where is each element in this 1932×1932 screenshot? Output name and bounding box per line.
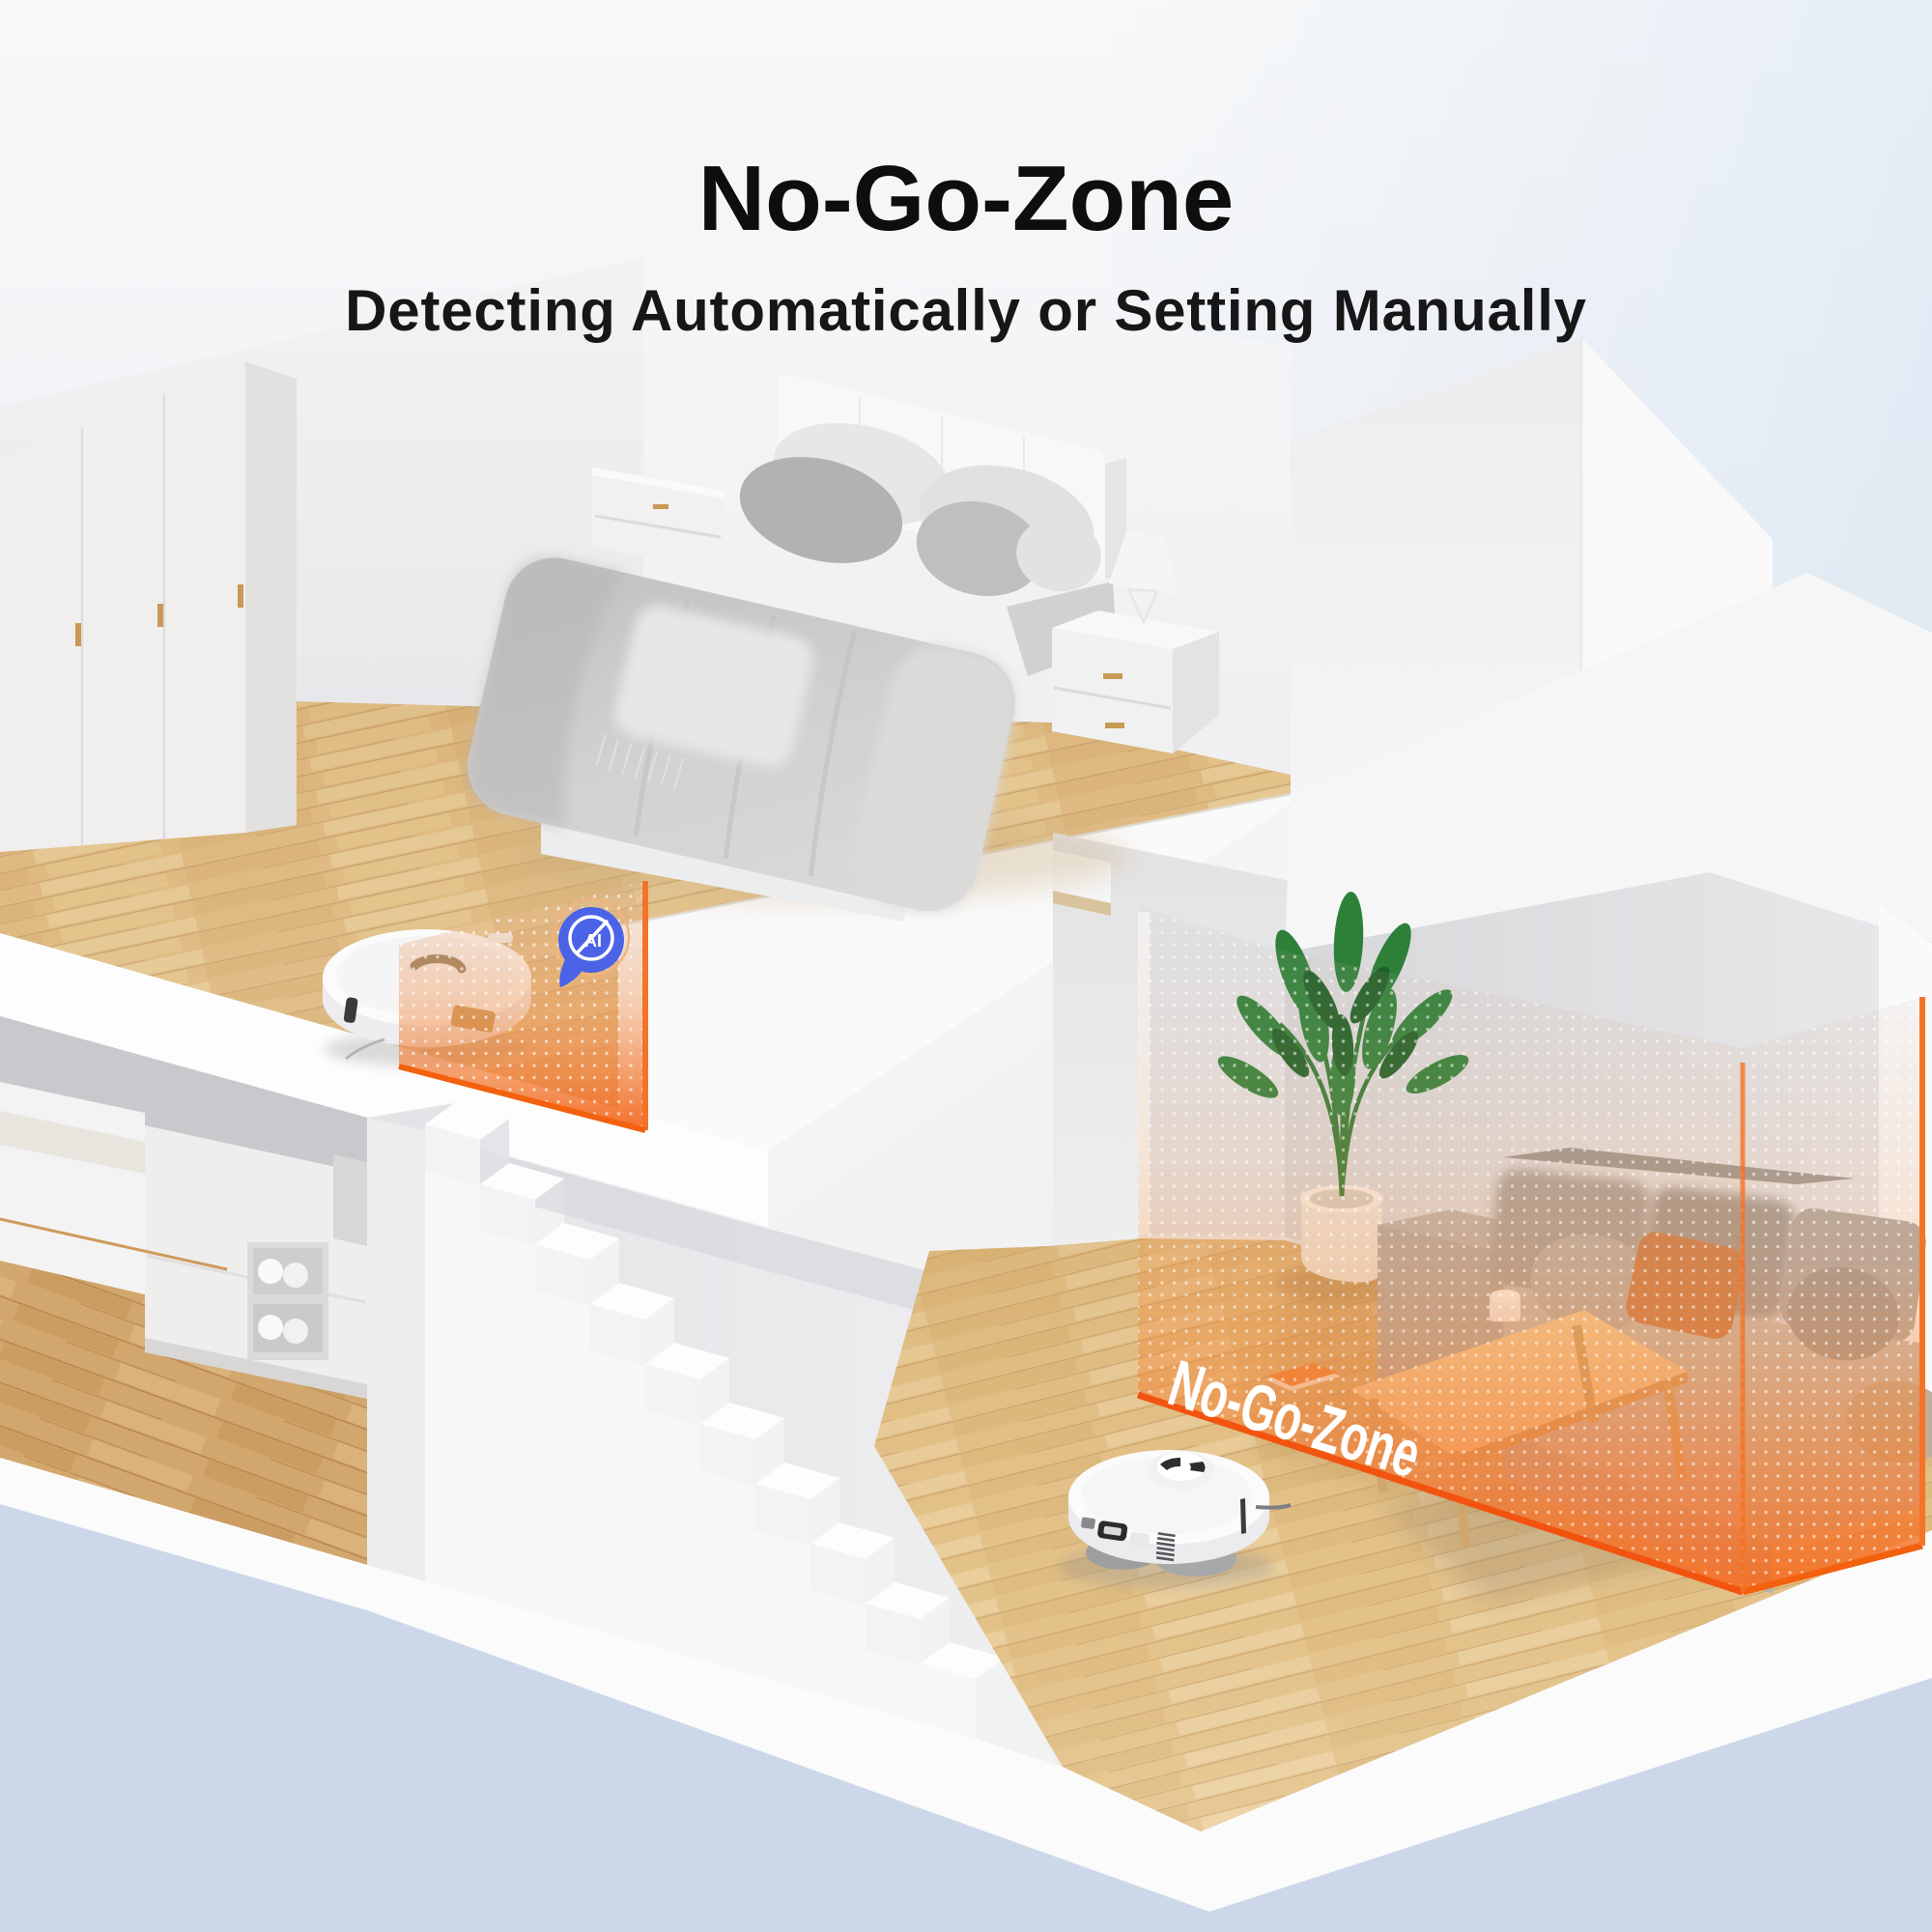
svg-text:AI: AI	[584, 931, 602, 951]
svg-text:No-Go-Zone: No-Go-Zone	[698, 147, 1235, 250]
svg-text:Detecting Automatically or Set: Detecting Automatically or Setting Manua…	[345, 278, 1587, 343]
